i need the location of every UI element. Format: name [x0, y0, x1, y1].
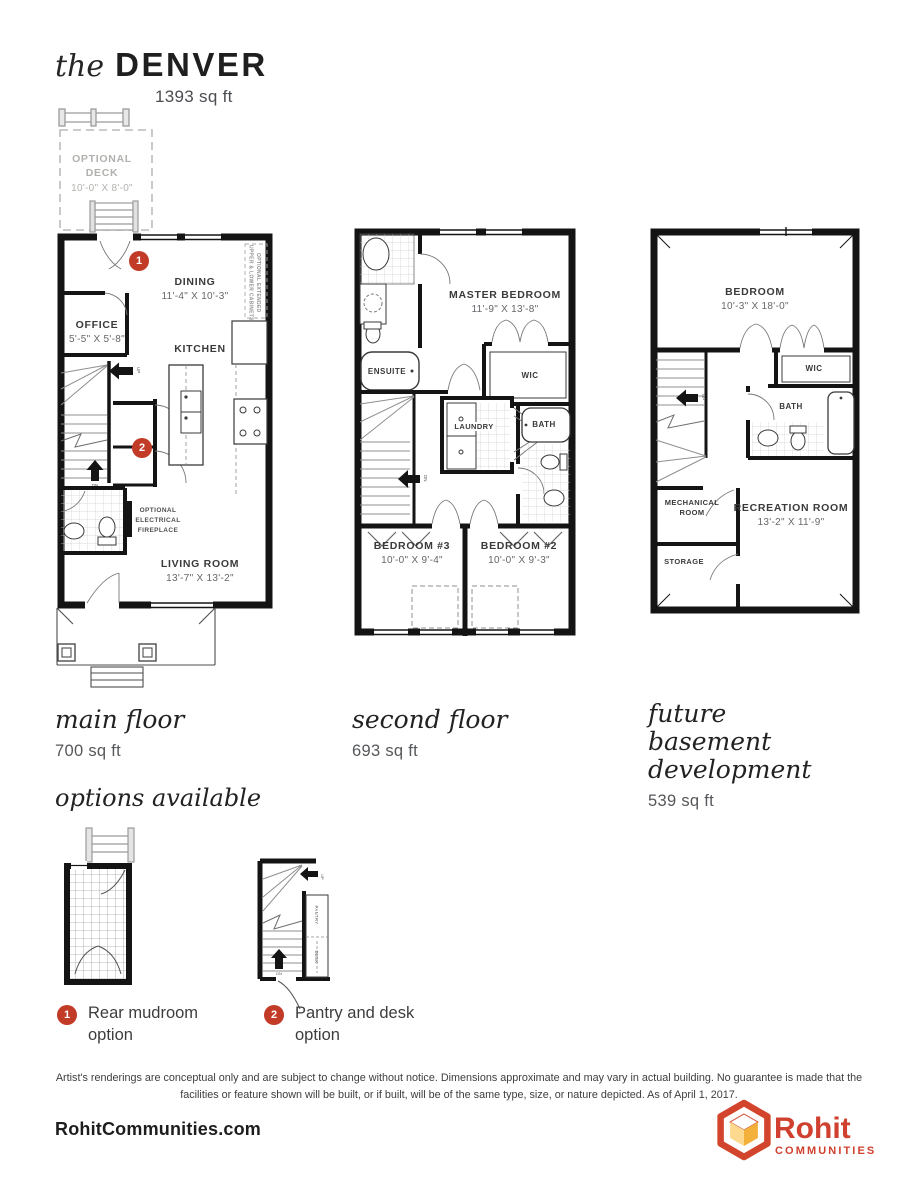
dining-label: DINING 11'-4" X 10'-3": [162, 276, 229, 302]
title-prefix: the: [55, 49, 104, 84]
option-item-2: 2 Pantry and desk option: [264, 1002, 430, 1047]
basement-bedroom-label: BEDROOM 10'-3" X 18'-0": [721, 286, 789, 312]
office-label: OFFICE 5'-5" X 5'-8": [69, 319, 125, 345]
option-label-2: Pantry and desk option: [295, 1002, 430, 1047]
option-badge-1: 1: [57, 1005, 77, 1025]
option-marker-2: 2: [132, 438, 152, 458]
deck-label: OPTIONAL DECK 10'-0" X 8'-0": [60, 152, 144, 194]
mudroom-svg: [59, 826, 137, 992]
mudroom-railing: [86, 828, 134, 862]
pantry-desk-svg: UP DN PANTRY DESK: [252, 853, 332, 1013]
bath-label: BATH: [530, 420, 558, 429]
second-floor-plan: DN MASTER BEDROOM 11'-9" X 1: [352, 226, 578, 640]
desk-label: DESK: [314, 950, 319, 963]
mechanical-room-label: MECHANICAL ROOM: [655, 498, 729, 518]
storage-label: STORAGE: [664, 557, 704, 566]
options-heading: options available: [55, 784, 261, 812]
main-floor-plan: UP DN: [55, 103, 275, 691]
ensuite-label: ENSUITE: [368, 367, 406, 376]
powder-room: [58, 488, 125, 555]
title-name: DENVER: [115, 46, 268, 84]
mudroom-window: [71, 861, 87, 870]
rohit-logo-svg: Rohit COMMUNITIES: [712, 1096, 882, 1164]
windows: [760, 227, 812, 237]
porch: [57, 608, 215, 687]
dn-label: DN: [423, 475, 428, 482]
basement-wic-label: WIC: [805, 364, 822, 373]
basement-plan: UP BEDROOM 10'-3" X 18'-0" WIC BATH MECH…: [648, 226, 862, 618]
pantry-label: PANTRY: [314, 906, 319, 925]
second-floor-sqft: 693 sq ft: [352, 742, 507, 760]
cube-hexagon-icon: [721, 1103, 768, 1157]
rear-mudroom-option-plan: [59, 826, 137, 992]
up-label: UP: [701, 394, 706, 400]
second-floor-caption: second floor 693 sq ft: [352, 706, 507, 760]
plan-title: the DENVER 1393 sq ft: [55, 46, 268, 107]
mudroom-walls: [67, 866, 129, 982]
basement-bath-label: BATH: [777, 402, 805, 411]
option-marker-1: 1: [129, 251, 149, 271]
option-label-1: Rear mudroom option: [88, 1002, 213, 1047]
bedroom3-label: BEDROOM #3 10'-0" X 9'-4": [374, 540, 450, 566]
rohit-communities-logo: Rohit COMMUNITIES: [712, 1096, 882, 1169]
wic-label: WIC: [521, 371, 538, 380]
main-floor-caption: main floor 700 sq ft: [55, 706, 184, 760]
recreation-room-label: RECREATION ROOM 13'-2" X 11'-9": [734, 502, 849, 528]
kitchen-island: [169, 365, 203, 465]
pantry-cabinet: PANTRY DESK: [306, 895, 328, 977]
up-arrow-icon: UP: [300, 867, 325, 881]
up-label: UP: [320, 874, 325, 880]
option-badge-2: 2: [264, 1005, 284, 1025]
master-bedroom-label: MASTER BEDROOM 11'-9" X 13'-8": [449, 289, 561, 315]
dn-label: DN: [276, 971, 282, 976]
pantry-desk-option-plan: UP DN PANTRY DESK: [252, 853, 332, 1013]
option-item-1: 1 Rear mudroom option: [57, 1002, 213, 1047]
main-floor-sqft: 700 sq ft: [55, 742, 184, 760]
kitchen-label: KITCHEN: [174, 343, 226, 355]
up-label: UP: [136, 367, 141, 373]
optional-cabinets-note: OPTIONAL EXTENDED UPPER & LOWER CABINETS: [246, 245, 261, 321]
basement-sqft: 539 sq ft: [648, 792, 838, 810]
laundry-label: LAUNDRY: [452, 422, 495, 431]
deck-railing: [59, 109, 129, 126]
brand-subtitle: COMMUNITIES: [775, 1145, 876, 1157]
fireplace-note: OPTIONAL ELECTRICAL FIREPLACE: [125, 506, 191, 535]
website-link[interactable]: RohitCommunities.com: [55, 1119, 261, 1140]
living-room-label: LIVING ROOM 13'-7" X 13'-2": [161, 558, 239, 584]
bedroom2-label: BEDROOM #2 10'-0" X 9'-3": [481, 540, 557, 566]
deck-stairs: [90, 201, 138, 232]
basement-caption: future basement development 539 sq ft: [648, 700, 838, 810]
brand-name: Rohit: [774, 1112, 851, 1145]
